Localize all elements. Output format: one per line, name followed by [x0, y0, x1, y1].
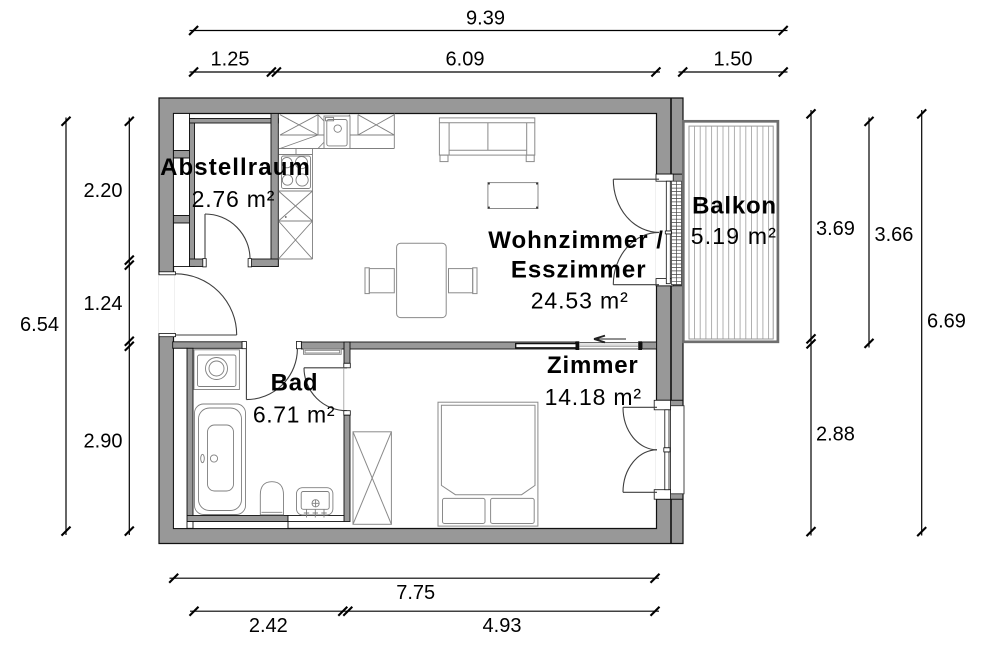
svg-text:2.76 m²: 2.76 m² — [192, 186, 276, 212]
svg-text:6.09: 6.09 — [446, 49, 485, 71]
svg-text:2.20: 2.20 — [84, 180, 123, 202]
svg-text:6.54: 6.54 — [20, 314, 59, 336]
svg-text:14.18 m²: 14.18 m² — [545, 384, 642, 410]
svg-text:3.69: 3.69 — [816, 218, 855, 240]
svg-text:7.75: 7.75 — [396, 582, 435, 604]
svg-text:4.93: 4.93 — [483, 615, 522, 637]
svg-text:24.53 m²: 24.53 m² — [531, 288, 629, 314]
svg-text:6.69: 6.69 — [927, 311, 966, 333]
svg-text:2.88: 2.88 — [816, 424, 855, 446]
svg-text:Abstellraum: Abstellraum — [160, 154, 311, 181]
svg-text:1.50: 1.50 — [714, 49, 753, 71]
svg-text:Bad: Bad — [271, 370, 319, 397]
svg-text:1.24: 1.24 — [84, 293, 123, 315]
svg-text:Wohnzimmer /: Wohnzimmer / — [488, 227, 664, 254]
svg-text:Esszimmer: Esszimmer — [511, 257, 647, 284]
svg-text:3.66: 3.66 — [875, 224, 914, 246]
svg-text:9.39: 9.39 — [466, 8, 505, 30]
svg-text:Balkon: Balkon — [692, 193, 777, 220]
svg-text:2.42: 2.42 — [249, 615, 288, 637]
svg-text:2.90: 2.90 — [84, 431, 123, 453]
svg-text:6.71 m²: 6.71 m² — [253, 402, 335, 428]
svg-text:Zimmer: Zimmer — [547, 352, 639, 379]
svg-text:5.19 m²: 5.19 m² — [691, 223, 777, 249]
svg-text:1.25: 1.25 — [211, 49, 250, 71]
